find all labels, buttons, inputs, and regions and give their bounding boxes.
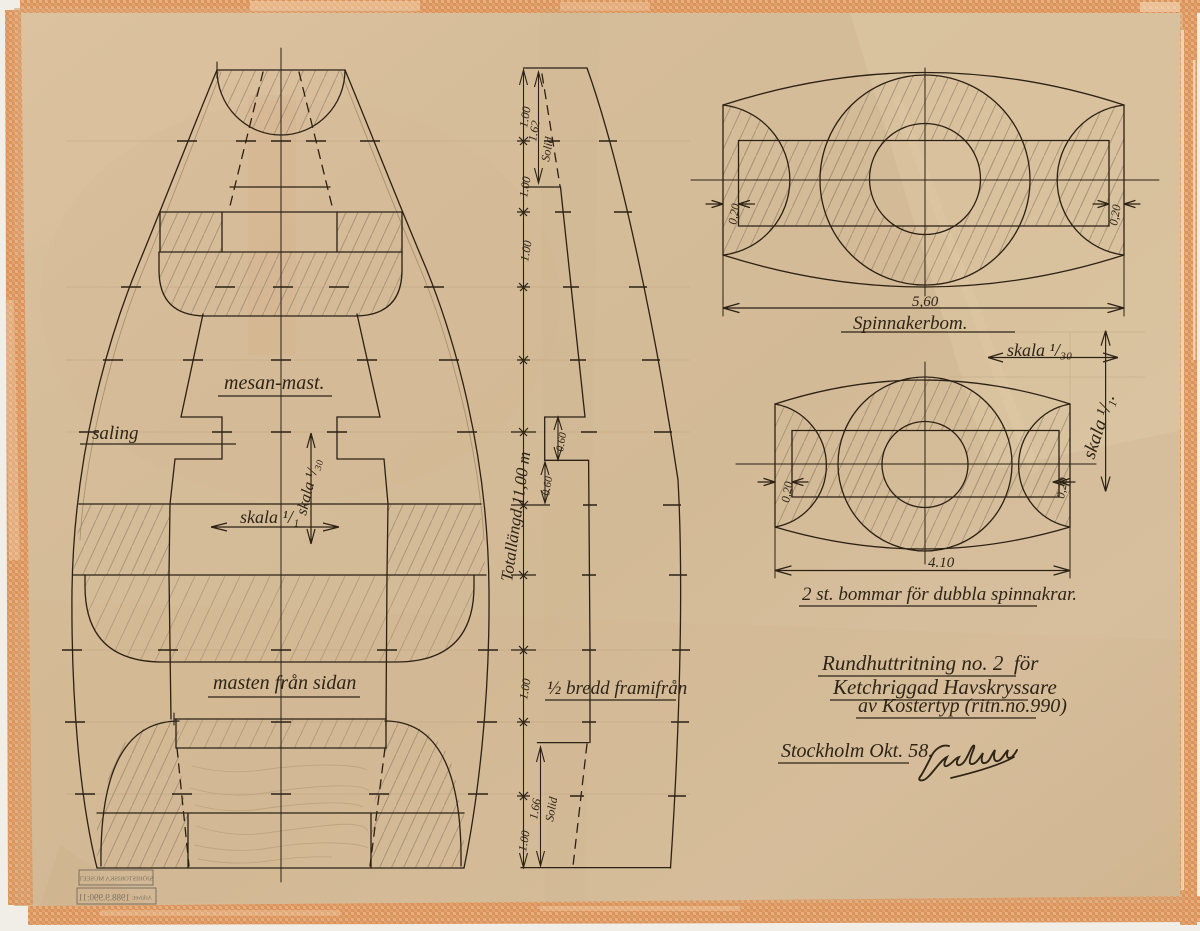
svg-text:4.10: 4.10 — [928, 555, 955, 571]
svg-text:Arkivet:: Arkivet: — [132, 896, 152, 902]
svg-text:1988.9.990:11: 1988.9.990:11 — [78, 893, 130, 903]
svg-text:av Kostertyp (ritn.no.990): av Kostertyp (ritn.no.990) — [858, 695, 1067, 717]
svg-text:Spinnakerbom.: Spinnakerbom. — [853, 313, 968, 334]
svg-text:2 st. bommar för dubbla spinna: 2 st. bommar för dubbla spinnakrar. — [802, 584, 1077, 605]
svg-text:5,60: 5,60 — [912, 294, 939, 310]
svg-text:mesan-mast.: mesan-mast. — [224, 372, 325, 394]
svg-text:skala ¹/₁: skala ¹/₁ — [240, 507, 299, 527]
svg-text:masten från sidan: masten från sidan — [213, 672, 356, 694]
svg-text:Stockholm Okt. 58.: Stockholm Okt. 58. — [781, 740, 933, 762]
svg-text:saling: saling — [92, 423, 138, 444]
svg-text:SJÖHISTORISKA MUSEET: SJÖHISTORISKA MUSEET — [79, 876, 153, 883]
svg-text:Rundhuttritning no. 2 för: Rundhuttritning no. 2 för — [821, 651, 1039, 675]
svg-text:½ bredd framifrån: ½ bredd framifrån — [547, 678, 687, 699]
